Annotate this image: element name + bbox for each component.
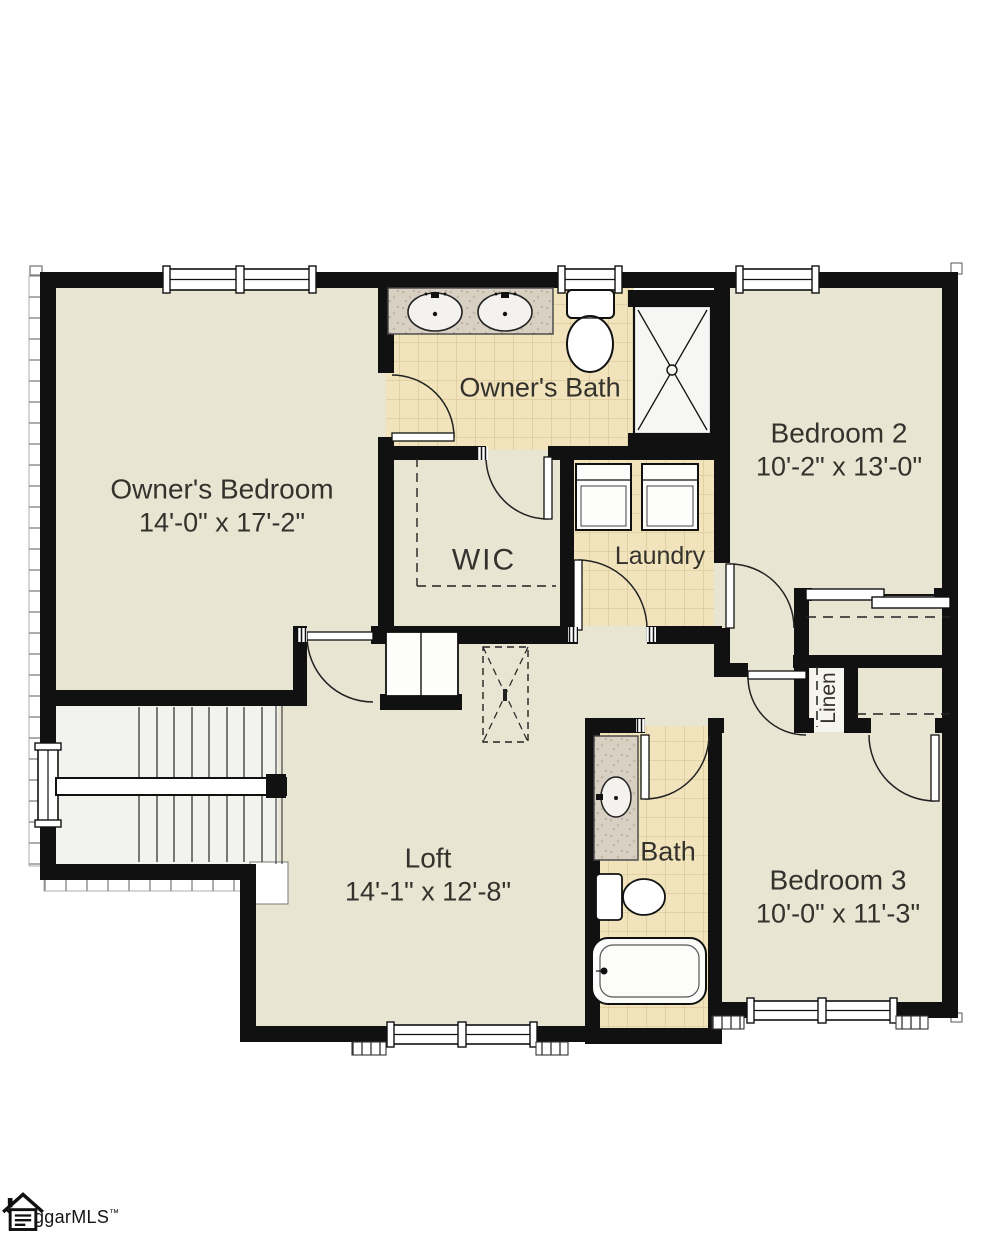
room-dimensions: 10'-2" x 13'-0" <box>756 451 922 484</box>
toilet-owners-bath <box>567 290 614 372</box>
room-label-wic: WIC <box>452 543 516 580</box>
shower-wall <box>628 433 724 450</box>
watermark-logo: ggarMLS™ <box>2 1192 119 1232</box>
window-owners-bedroom <box>163 266 316 293</box>
window-loft <box>387 1022 537 1047</box>
window-bedroom2 <box>736 266 819 293</box>
room-label-bedroom2: Bedroom 2 10'-2" x 13'-0" <box>756 416 922 483</box>
stair-newel <box>266 774 286 798</box>
room-name: Bath <box>640 836 696 869</box>
room-label-owners-bedroom: Owner's Bedroom 14'-0" x 17'-2" <box>110 472 333 539</box>
wall-segment <box>585 1028 722 1044</box>
room-dimensions: 14'-0" x 17'-2" <box>110 507 333 540</box>
wall-segment <box>40 864 256 880</box>
window-owners-bath <box>558 266 622 293</box>
wall-segment <box>942 272 958 1018</box>
jamb-mark <box>568 627 578 642</box>
wall-segment <box>806 718 814 733</box>
room-label-bath: Bath <box>640 836 696 869</box>
wall-segment <box>560 446 574 640</box>
shutter-mark <box>712 1016 744 1029</box>
wall-segment <box>844 718 871 733</box>
shutter-mark <box>536 1042 568 1055</box>
door-leaf <box>931 735 939 801</box>
wall-segment <box>378 446 486 460</box>
door-leaf <box>574 560 582 630</box>
wall-segment <box>714 663 748 677</box>
double-vanity <box>388 288 553 334</box>
wall-segment <box>935 718 958 733</box>
wall-segment <box>378 437 394 644</box>
door-leaf <box>748 671 806 679</box>
room-name: Loft <box>345 841 511 875</box>
bath-vanity <box>594 736 638 860</box>
stair-landing-rail <box>56 778 286 795</box>
shutter-mark <box>352 1042 386 1055</box>
bypass-door <box>872 597 950 608</box>
dryer <box>642 464 698 530</box>
trademark-symbol: ™ <box>109 1208 119 1219</box>
door-leaf <box>307 632 373 640</box>
door-leaf <box>392 433 454 441</box>
wall-segment <box>708 718 722 1044</box>
wall-segment <box>40 690 307 706</box>
shower-drain-icon <box>667 365 677 375</box>
washer <box>576 464 631 530</box>
jamb-mark <box>646 627 656 642</box>
floor-plan-drawing <box>0 0 1003 1239</box>
room-label-linen: Linen <box>816 672 842 723</box>
jamb-mark <box>478 447 488 460</box>
jamb-mark <box>636 719 645 732</box>
window-bedroom3 <box>747 998 897 1023</box>
room-label-bedroom3: Bedroom 3 10'-0" x 11'-3" <box>756 863 920 930</box>
wall-segment <box>647 626 722 644</box>
hall-chase <box>386 632 458 696</box>
room-label-loft: Loft 14'-1" x 12'-8" <box>345 841 511 908</box>
faucet-icon <box>596 794 603 800</box>
watermark-text: ggarMLS™ <box>34 1207 119 1228</box>
door-leaf <box>641 735 649 799</box>
room-name: Laundry <box>615 541 705 572</box>
jamb-mark <box>297 628 307 642</box>
shower-wall <box>628 290 724 307</box>
room-label-laundry: Laundry <box>615 541 705 572</box>
room-name: Owner's Bath <box>459 372 620 405</box>
shutter-mark <box>896 1016 928 1029</box>
room-name: Bedroom 3 <box>756 863 920 897</box>
room-dimensions: 14'-1" x 12'-8" <box>345 876 511 909</box>
room-label-owners-bath: Owner's Bath <box>459 372 620 405</box>
faucet-icon <box>431 292 439 298</box>
wall-segment <box>240 864 256 1042</box>
faucet-icon <box>501 292 509 298</box>
bathtub <box>592 938 706 1004</box>
door-leaf <box>726 564 734 628</box>
shower <box>634 306 711 434</box>
watermark-name: ggarMLS <box>34 1207 109 1227</box>
room-name: WIC <box>452 543 516 580</box>
floor-plan-page: Owner's Bedroom 14'-0" x 17'-2" Owner's … <box>0 0 1003 1239</box>
room-name: Owner's Bedroom <box>110 472 333 506</box>
room-name: Bedroom 2 <box>756 416 922 450</box>
door-leaf <box>544 457 552 519</box>
room-name: Linen <box>816 672 842 723</box>
room-dimensions: 10'-0" x 11'-3" <box>756 898 920 931</box>
